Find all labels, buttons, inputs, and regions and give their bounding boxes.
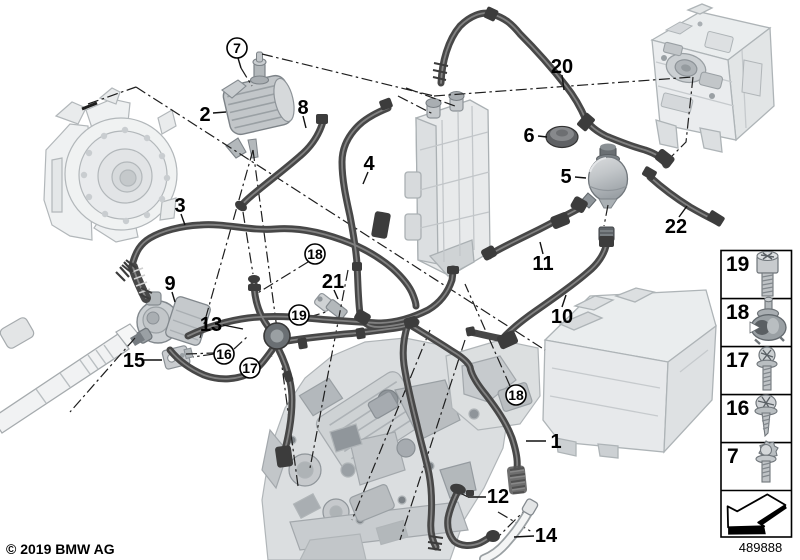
svg-text:18: 18 [307,246,323,262]
svg-text:14: 14 [535,525,558,547]
svg-text:7: 7 [727,445,739,468]
svg-text:18: 18 [726,301,750,324]
svg-text:20: 20 [551,56,573,78]
svg-text:3: 3 [174,195,185,217]
svg-text:16: 16 [216,346,232,362]
svg-text:10: 10 [551,306,573,328]
svg-text:4: 4 [363,153,375,175]
svg-text:1: 1 [550,431,561,453]
svg-text:12: 12 [487,486,509,508]
svg-text:19: 19 [291,307,307,323]
svg-text:9: 9 [164,273,175,295]
svg-text:18: 18 [508,387,524,403]
svg-text:© 2019 BMW AG: © 2019 BMW AG [6,541,115,557]
svg-text:17: 17 [726,349,749,372]
svg-text:19: 19 [726,253,749,276]
svg-text:16: 16 [726,397,749,420]
svg-text:11: 11 [532,253,553,275]
svg-text:6: 6 [523,125,534,147]
svg-text:5: 5 [560,166,571,188]
svg-text:2: 2 [199,104,210,126]
svg-text:13: 13 [200,314,222,336]
svg-text:21: 21 [322,271,344,293]
svg-text:22: 22 [665,216,687,238]
svg-text:489888: 489888 [739,540,782,555]
svg-text:8: 8 [297,97,308,119]
svg-text:15: 15 [123,350,145,372]
svg-text:17: 17 [242,360,258,376]
svg-text:7: 7 [233,40,241,56]
